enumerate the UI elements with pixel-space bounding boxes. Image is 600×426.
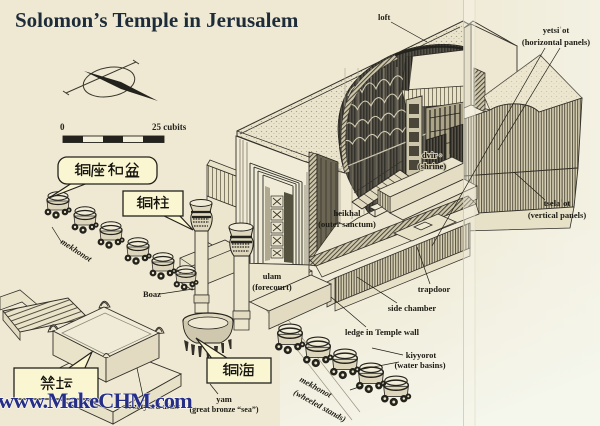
- svg-text:yetsiʾot: yetsiʾot: [543, 25, 570, 35]
- svg-text:loft: loft: [378, 12, 390, 22]
- svg-text:side chamber: side chamber: [388, 303, 437, 313]
- svg-text:Solomon’s Temple in Jerusalem: Solomon’s Temple in Jerusalem: [15, 8, 299, 32]
- svg-text:www.MakeCHM.com: www.MakeCHM.com: [0, 388, 193, 413]
- svg-text:trapdoor: trapdoor: [418, 284, 451, 294]
- svg-text:0: 0: [60, 122, 65, 132]
- svg-text:ulam: ulam: [263, 271, 281, 281]
- svg-text:dvir ◦: dvir ◦: [422, 150, 442, 160]
- svg-text:25 cubits: 25 cubits: [152, 122, 187, 132]
- svg-text:tselaʾot: tselaʾot: [544, 198, 571, 208]
- svg-text:(forecourt): (forecourt): [252, 282, 292, 292]
- svg-text:(water basins): (water basins): [394, 360, 445, 370]
- svg-text:(shrine): (shrine): [418, 161, 447, 171]
- svg-text:(vertical panels): (vertical panels): [528, 210, 586, 220]
- svg-text:(outer sanctum): (outer sanctum): [318, 219, 376, 229]
- svg-text:yam: yam: [216, 394, 232, 404]
- svg-text:(horizontal panels): (horizontal panels): [522, 37, 590, 47]
- svg-text:Boaz: Boaz: [143, 289, 161, 299]
- svg-text:kiyyorot: kiyyorot: [406, 350, 437, 360]
- svg-text:(great bronze “sea”): (great bronze “sea”): [189, 405, 258, 414]
- svg-text:ledge in Temple wall: ledge in Temple wall: [345, 327, 420, 337]
- svg-text:heikhal: heikhal: [334, 208, 362, 218]
